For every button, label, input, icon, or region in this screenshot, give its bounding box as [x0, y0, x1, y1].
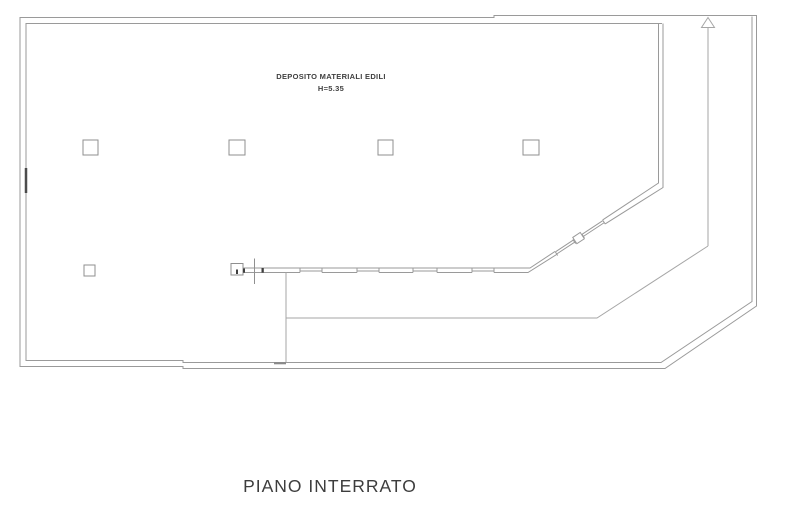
floorplan-drawing: DEPOSITO MATERIALI EDILI H=5.35 PIANO IN…: [0, 0, 800, 526]
column-marker: [378, 140, 393, 155]
ramp-path: [286, 18, 715, 363]
column-marker: [83, 140, 98, 155]
ramp-edge-line: [286, 246, 708, 318]
room-wall-outer-line: [243, 24, 663, 273]
jamb-tick: [236, 270, 238, 275]
perimeter-wall-outer-line: [20, 16, 757, 369]
arrow-head: [702, 18, 715, 28]
floorplan-page: DEPOSITO MATERIALI EDILI H=5.35 PIANO IN…: [0, 0, 800, 526]
perimeter-wall-inner-line: [26, 17, 752, 363]
deposito-room-walls: [241, 24, 663, 273]
wall-details: [26, 168, 286, 363]
room-height-label: H=5.35: [318, 84, 344, 93]
column-marker: [523, 140, 539, 155]
column-marker: [229, 140, 245, 155]
wall-opening: [357, 267, 379, 274]
jamb-tick: [243, 269, 245, 273]
wall-openings-diagonal: [554, 218, 606, 256]
wall-opening: [472, 267, 494, 274]
plan-title: PIANO INTERRATO: [243, 476, 417, 496]
perimeter-wall: [20, 16, 757, 369]
wall-opening: [554, 239, 576, 257]
wall-opening: [581, 219, 606, 239]
column-marker: [84, 265, 95, 276]
wall-opening: [413, 267, 437, 274]
up-arrow-icon: [702, 18, 715, 247]
wall-opening: [300, 267, 322, 274]
jamb-tick: [262, 268, 264, 273]
columns: [83, 140, 539, 276]
room-name-label: DEPOSITO MATERIALI EDILI: [276, 72, 385, 81]
